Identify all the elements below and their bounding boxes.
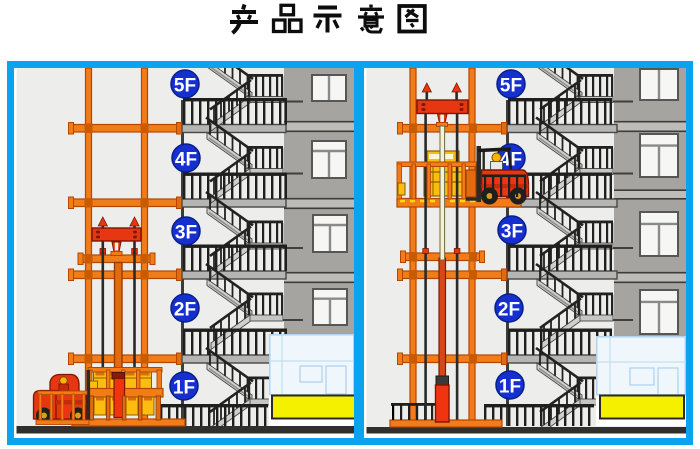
svg-text:1F: 1F (173, 378, 195, 399)
svg-text:4F: 4F (175, 150, 197, 171)
svg-text:5F: 5F (500, 76, 522, 97)
svg-text:3F: 3F (501, 222, 523, 243)
svg-text:2F: 2F (174, 300, 196, 321)
svg-text:5F: 5F (174, 76, 196, 97)
svg-text:3F: 3F (175, 223, 197, 244)
svg-text:1F: 1F (499, 377, 521, 398)
svg-text:2F: 2F (498, 300, 520, 321)
